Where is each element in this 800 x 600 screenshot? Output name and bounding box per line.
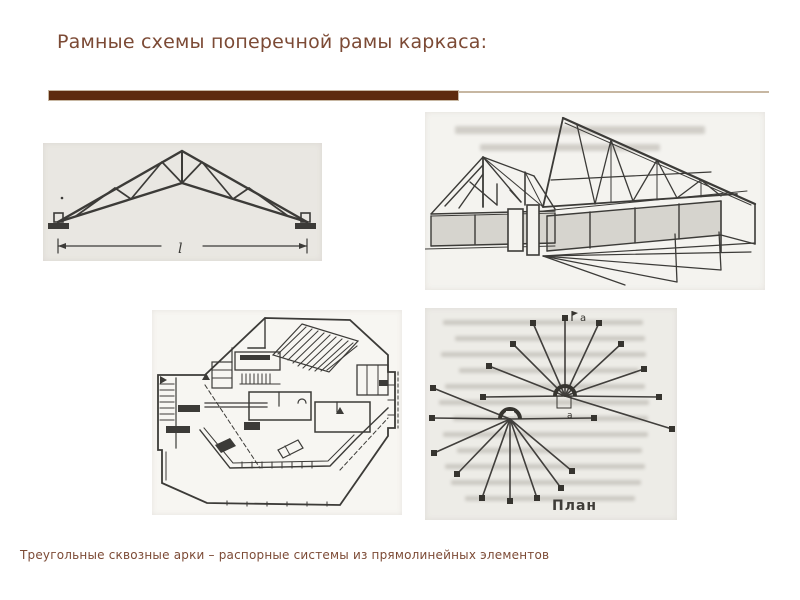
accent-bar <box>48 90 459 101</box>
truss-arch-drawing: l <box>43 143 322 261</box>
radial-plan-drawing: а а План <box>425 308 677 520</box>
figure-truss-arch: l <box>43 143 322 261</box>
figure-radial-plan: а а План <box>425 308 677 520</box>
axonometric-drawing <box>425 112 765 290</box>
floor-plan-drawing <box>152 310 402 515</box>
figure-floor-plan <box>152 310 402 515</box>
span-length-label: l <box>178 241 182 257</box>
marker-label-top: а <box>580 313 586 324</box>
plan-label: План <box>552 498 597 514</box>
presentation-slide: Рамные схемы поперечной рамы каркаса: <box>0 0 800 600</box>
slide-caption: Треугольные сквозные арки – распорные си… <box>20 548 780 562</box>
slide-title: Рамные схемы поперечной рамы каркаса: <box>57 30 757 54</box>
marker-label-hub: а <box>567 411 573 421</box>
divider-rule <box>459 91 769 93</box>
figure-frame-axonometric <box>425 112 765 290</box>
